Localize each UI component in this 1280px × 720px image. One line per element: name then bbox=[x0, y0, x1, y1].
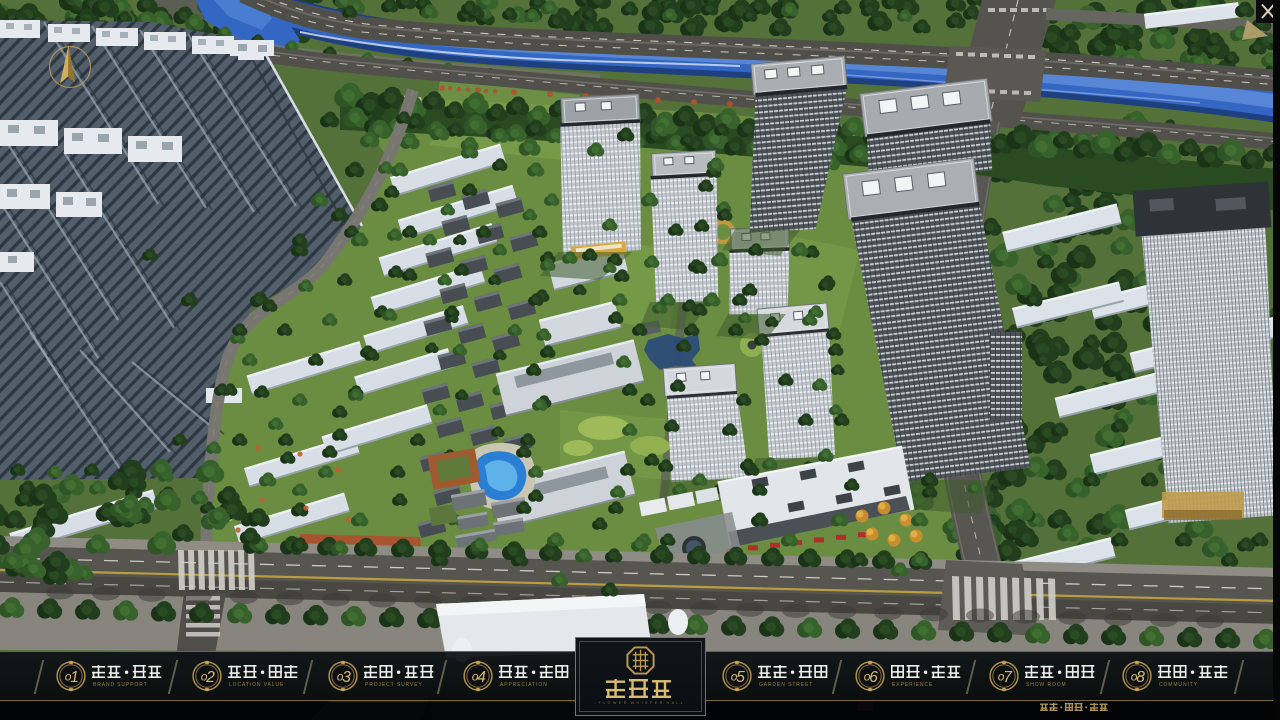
svg-text:8: 8 bbox=[1136, 669, 1145, 686]
svg-text:5: 5 bbox=[736, 669, 745, 686]
svg-text:3: 3 bbox=[342, 669, 351, 686]
svg-text:1: 1 bbox=[70, 669, 79, 686]
svg-text:7: 7 bbox=[1003, 669, 1013, 686]
svg-text:2: 2 bbox=[205, 669, 215, 686]
svg-text:6: 6 bbox=[869, 669, 878, 686]
svg-text:4: 4 bbox=[477, 669, 486, 686]
